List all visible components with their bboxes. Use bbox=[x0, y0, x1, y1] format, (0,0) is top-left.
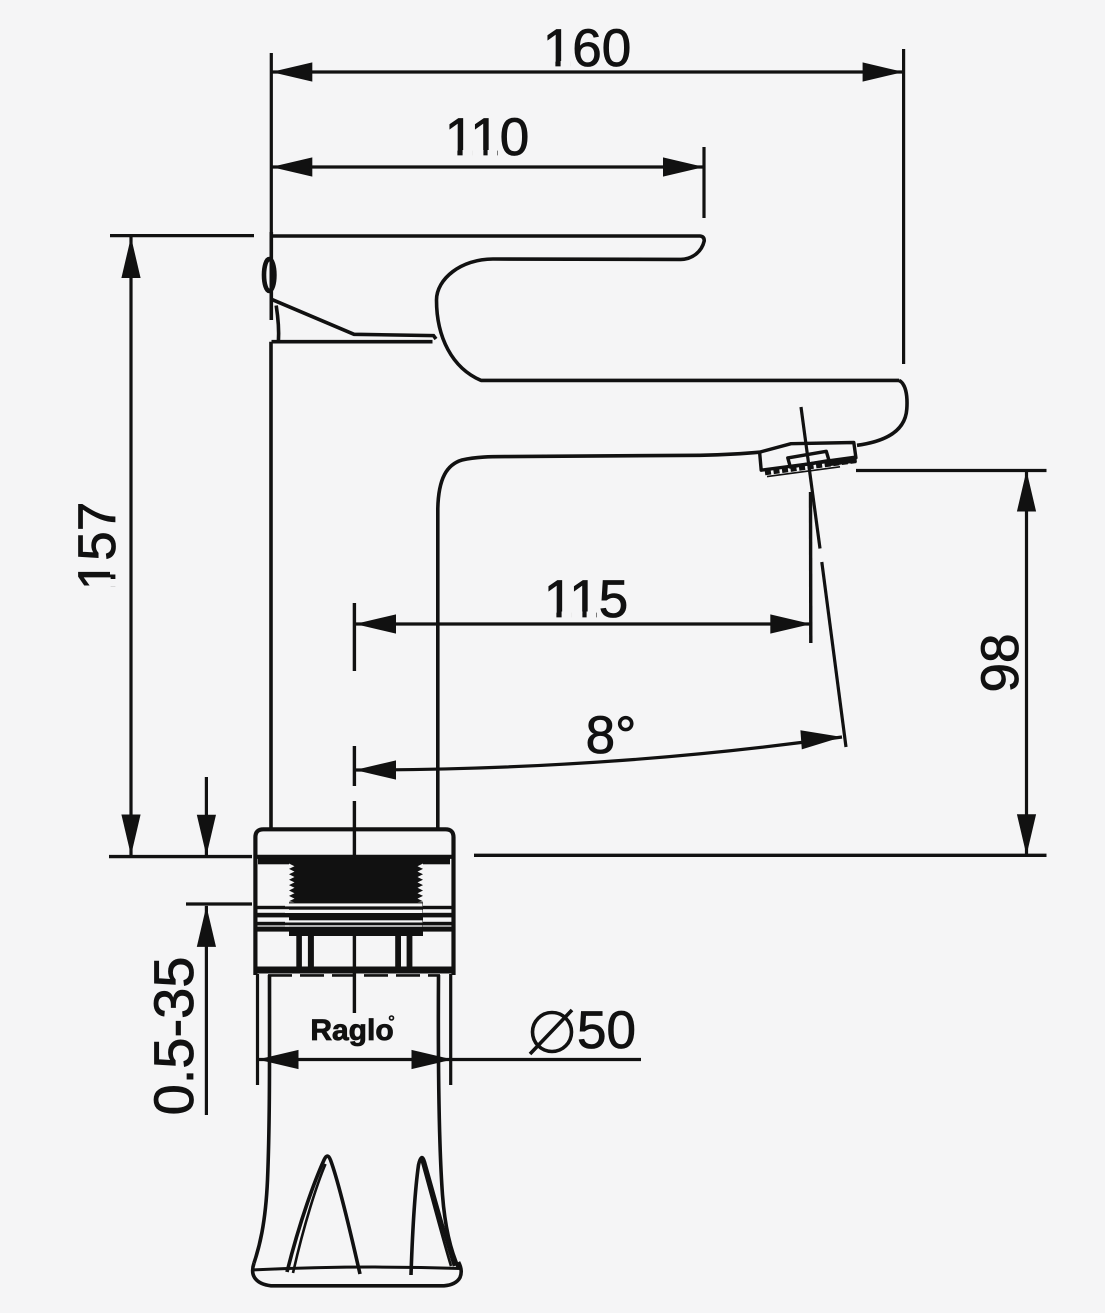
svg-text:98: 98 bbox=[971, 634, 1030, 693]
svg-text:160: 160 bbox=[543, 19, 631, 78]
svg-text:50: 50 bbox=[577, 1001, 636, 1060]
svg-text:Raglo: Raglo bbox=[310, 1014, 393, 1047]
svg-text:8°: 8° bbox=[586, 706, 637, 765]
svg-text:110: 110 bbox=[445, 108, 530, 167]
svg-text:157: 157 bbox=[68, 502, 127, 590]
svg-text:115: 115 bbox=[544, 570, 629, 629]
svg-text:0.5-35: 0.5-35 bbox=[142, 957, 205, 1116]
